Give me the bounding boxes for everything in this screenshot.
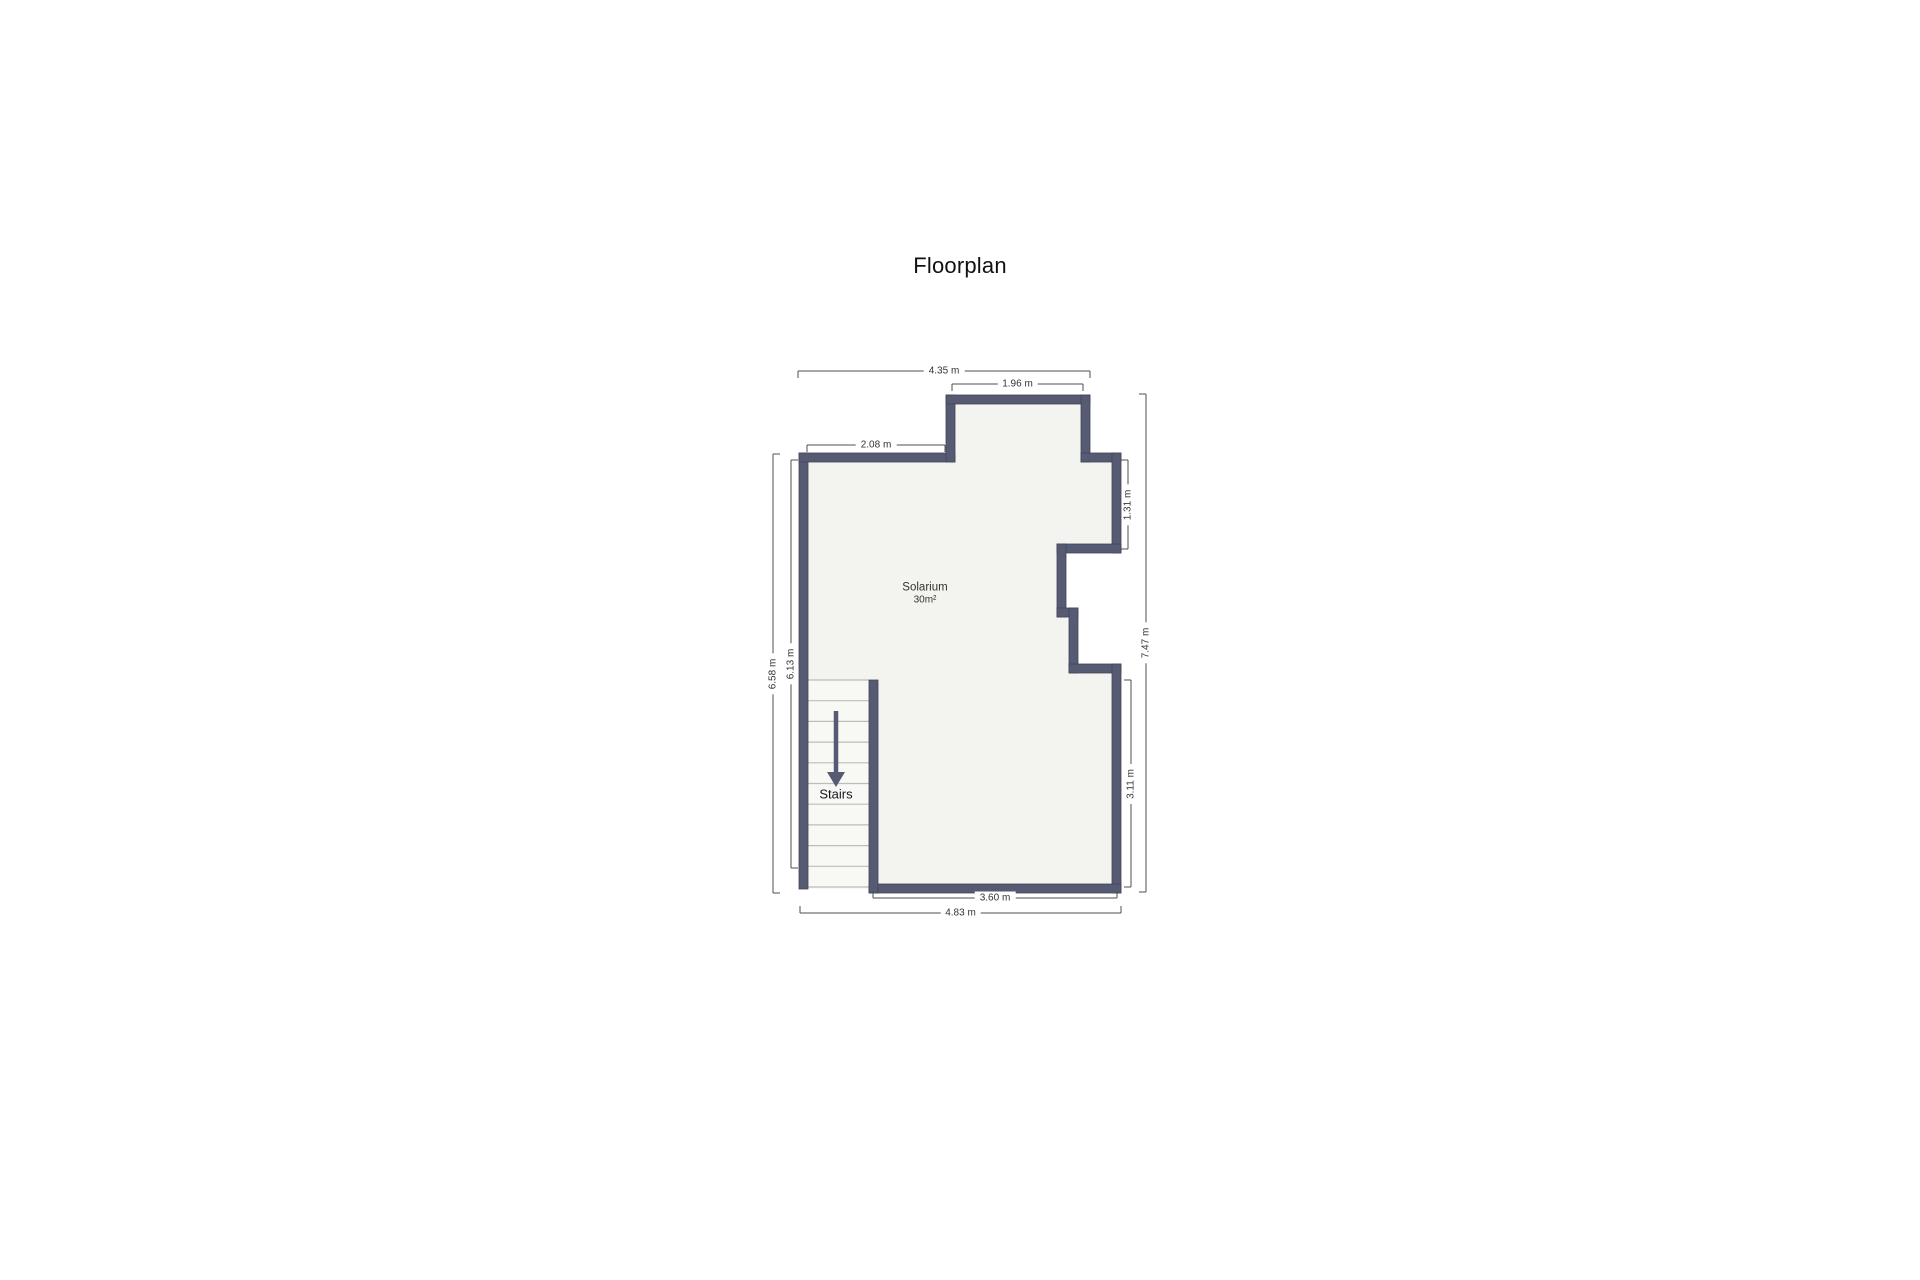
- page: Floorplan Solarium 30m² Stairs 4.35 m1.9…: [0, 0, 1920, 1280]
- stairwell-area: [808, 680, 869, 889]
- wall-bump-left: [946, 395, 955, 462]
- floorplan-drawing: [0, 0, 1920, 1280]
- wall-notch-left-lower: [1069, 608, 1078, 673]
- wall-bottom: [869, 884, 1121, 893]
- wall-stairs-right: [869, 680, 878, 893]
- wall-bump-top: [946, 395, 1090, 404]
- wall-notch-left-upper: [1057, 544, 1066, 617]
- wall-bump-right: [1081, 395, 1090, 462]
- wall-right-upper: [1112, 453, 1121, 553]
- wall-top: [799, 453, 955, 462]
- wall-left: [799, 453, 808, 889]
- wall-notch-top: [1057, 544, 1121, 553]
- wall-right-lower: [1112, 664, 1121, 893]
